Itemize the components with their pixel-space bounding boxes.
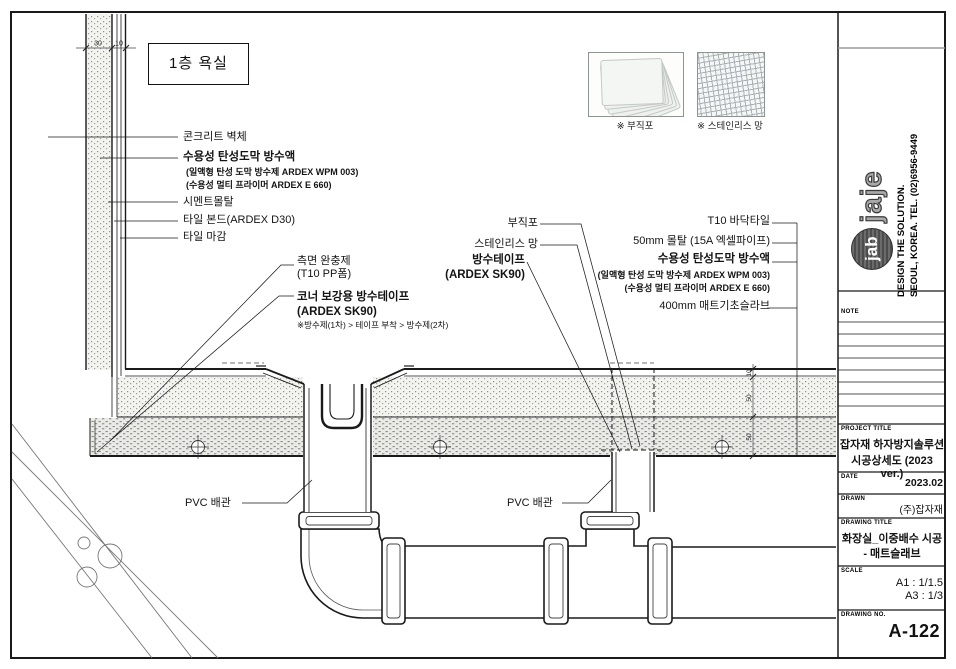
wall-dim-mortar: 30 <box>94 41 102 48</box>
floor-structure <box>90 363 836 460</box>
label-side-cushion-1: 측면 완충제 <box>297 255 351 267</box>
label-tile-finish: 타일 마감 <box>183 231 227 243</box>
label-tile-bond: 타일 본드(ARDEX D30) <box>183 214 295 226</box>
tagline-line1: DESIGN THE SOLUTION. <box>896 129 909 297</box>
logo-circle-jab: jab <box>851 228 893 270</box>
label-tape-procedure-note: ※방수제(1차) > 테이프 부착 > 방수제(2차) <box>297 321 448 331</box>
label-side-cushion-2: (T10 PP폼) <box>297 268 351 280</box>
wall-section <box>86 14 126 377</box>
label-concrete-wall: 콘크리트 벽체 <box>183 131 247 143</box>
scale-value-a1: A1 : 1/1.5 <box>896 577 943 589</box>
mesh-photo <box>697 52 765 117</box>
label-waterproof-tape-1: 방수테이프 <box>472 254 525 267</box>
label-mat-slab: 400mm 매트기초슬라브 <box>659 300 770 312</box>
wall-dim-tile: 10 <box>115 41 123 48</box>
drawn-label: DRAWN <box>841 496 865 502</box>
drawing-no-label: DRAWING NO. <box>841 612 886 618</box>
date-label: DATE <box>841 474 858 480</box>
room-title-box: 1층 욕실 <box>148 43 249 85</box>
label-nonwoven-fabric: 부직포 <box>508 217 538 229</box>
label-corner-tape-1: 코너 보강용 방수테이프 <box>297 291 409 304</box>
drawing-title-line1: 화장실_이중배수 시공 <box>839 530 945 546</box>
cad-linework: 30 10 <box>0 0 956 669</box>
label-pvc-pipe-1: PVC 배관 <box>185 497 231 509</box>
company-logo: jab jaje <box>850 145 894 295</box>
drawn-value: (주)잡자재 <box>900 501 943 516</box>
label-wall-waterproof-sub2: (수용성 멀티 프라이머 ARDEX E 660) <box>186 180 332 190</box>
scale-label: SCALE <box>841 568 863 574</box>
label-floor-waterproof-sub1: (일액형 탄성 도막 방수제 ARDEX WPM 003) <box>598 270 770 280</box>
label-floor-waterproof-sub2: (수용성 멀티 프라이머 ARDEX E 660) <box>624 283 770 293</box>
break-lines <box>12 424 218 658</box>
date-value: 2023.02 <box>905 477 943 489</box>
floor-dim-bed: 50 <box>746 433 753 441</box>
fabric-photo <box>588 52 684 117</box>
label-cement-mortar: 시멘트몰탈 <box>183 196 234 208</box>
label-waterproof-tape-2: (ARDEX SK90) <box>445 269 525 282</box>
floor-dim-mortar: 50 <box>746 394 753 402</box>
label-stainless-mesh: 스테인리스 망 <box>474 238 538 250</box>
drawing-no-value: A-122 <box>888 621 940 642</box>
mesh-caption: ※ 스테인리스 망 <box>688 118 772 132</box>
drawing-title-label: DRAWING TITLE <box>841 520 892 526</box>
label-wall-waterproof: 수용성 탄성도막 방수액 <box>183 151 295 164</box>
drawing-sheet: 30 10 <box>0 0 956 669</box>
label-floor-tile: T10 바닥타일 <box>708 215 771 227</box>
project-title-line1: 잡자재 하자방지솔루션 <box>839 436 945 452</box>
label-floor-mortar: 50mm 몰탈 (15A 엑셀파이프) <box>633 235 770 247</box>
note-label: NOTE <box>841 309 859 315</box>
label-pvc-pipe-2: PVC 배관 <box>507 497 553 509</box>
label-corner-tape-2: (ARDEX SK90) <box>297 306 377 319</box>
floor-dim-tile: 10 <box>746 369 753 377</box>
project-title-label: PROJECT TITLE <box>841 426 892 432</box>
scale-value-a3: A3 : 1/3 <box>905 590 943 602</box>
mesh-pattern <box>697 52 765 117</box>
label-floor-waterproof: 수용성 탄성도막 방수액 <box>658 253 770 266</box>
company-tagline: DESIGN THE SOLUTION. SEOUL, KOREA. TEL. … <box>896 129 922 297</box>
drawing-title-line2: - 매트슬래브 <box>839 545 945 561</box>
logo-word-jaje: jaje <box>856 170 889 222</box>
tagline-line2: SEOUL, KOREA. TEL. (02)6956-9449 <box>909 129 922 297</box>
label-wall-waterproof-sub1: (일액형 탄성 도막 방수제 ARDEX WPM 003) <box>186 167 358 177</box>
pvc-piping <box>299 512 836 624</box>
fabric-caption: ※ 부직포 <box>588 118 682 132</box>
